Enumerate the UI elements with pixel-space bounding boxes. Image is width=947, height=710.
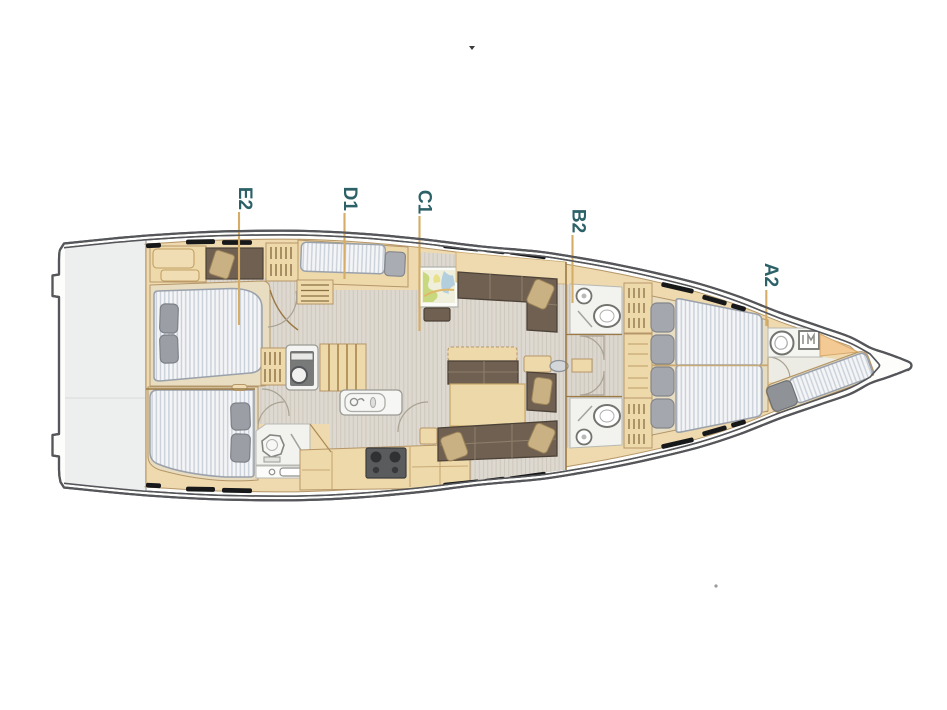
svg-text:B2: B2 — [568, 209, 589, 233]
svg-text:D1: D1 — [339, 187, 360, 212]
svg-text:E2: E2 — [234, 187, 255, 210]
svg-text:A2: A2 — [760, 263, 781, 287]
svg-text:C1: C1 — [414, 190, 435, 215]
